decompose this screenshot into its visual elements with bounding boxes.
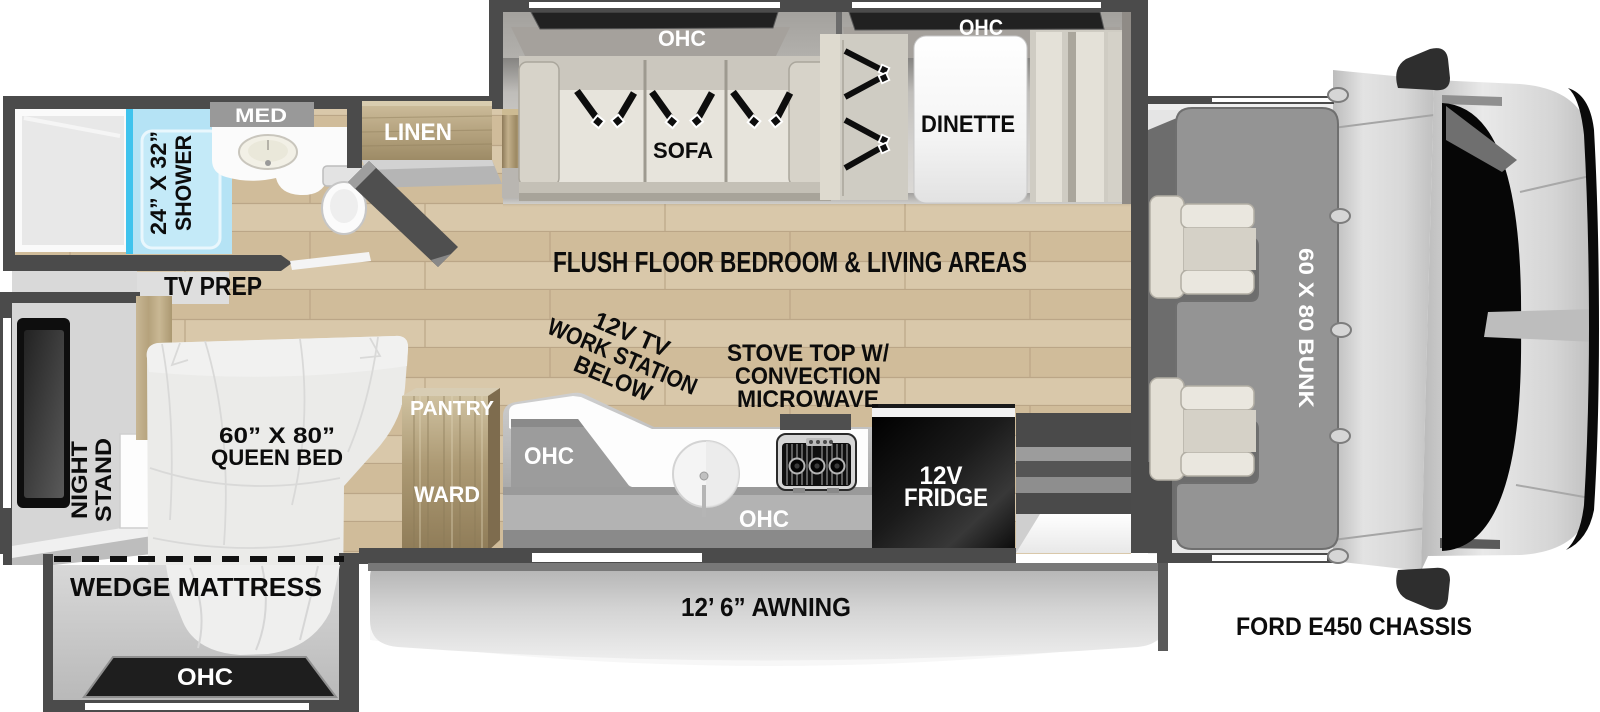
svg-text:FORD E450 CHASSIS: FORD E450 CHASSIS	[1236, 613, 1472, 641]
svg-text:DINETTE: DINETTE	[921, 111, 1015, 138]
svg-text:MED: MED	[235, 106, 287, 127]
svg-text:60 X 80 BUNK: 60 X 80 BUNK	[1294, 248, 1317, 408]
svg-text:MICROWAVE: MICROWAVE	[737, 386, 879, 413]
svg-text:WEDGE MATTRESS: WEDGE MATTRESS	[70, 572, 322, 602]
svg-text:PANTRY: PANTRY	[410, 398, 495, 420]
svg-text:24” X 32”: 24” X 32”	[146, 131, 171, 235]
svg-text:FLUSH FLOOR BEDROOM & LIVING A: FLUSH FLOOR BEDROOM & LIVING AREAS	[553, 247, 1027, 279]
svg-text:NIGHT: NIGHT	[67, 440, 92, 519]
svg-text:STAND: STAND	[91, 438, 116, 522]
svg-text:FRIDGE: FRIDGE	[904, 484, 988, 512]
svg-text:OHC: OHC	[739, 506, 789, 533]
svg-text:LINEN: LINEN	[384, 119, 452, 146]
svg-text:TV PREP: TV PREP	[164, 271, 262, 301]
svg-text:12’ 6” AWNING: 12’ 6” AWNING	[681, 592, 851, 622]
svg-text:SOFA: SOFA	[653, 138, 713, 163]
svg-text:SHOWER: SHOWER	[171, 135, 196, 231]
svg-text:OHC: OHC	[658, 26, 706, 51]
svg-text:QUEEN BED: QUEEN BED	[211, 445, 343, 470]
svg-text:OHC: OHC	[177, 664, 233, 691]
svg-text:WARD: WARD	[414, 482, 480, 507]
svg-text:OHC: OHC	[524, 443, 574, 470]
svg-text:OHC: OHC	[959, 15, 1003, 40]
